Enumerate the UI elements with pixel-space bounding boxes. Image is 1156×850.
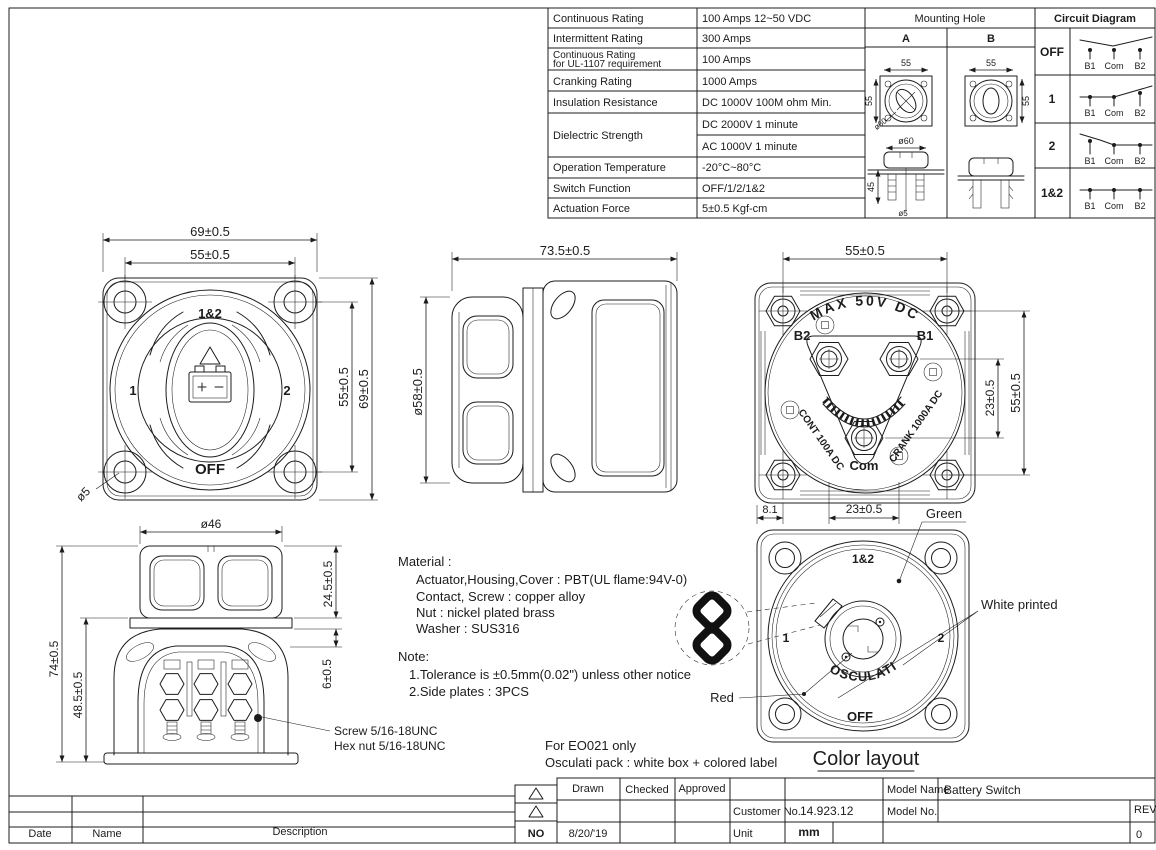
checked-header: Checked bbox=[625, 784, 668, 796]
note-title: Note: bbox=[398, 649, 429, 664]
spec-value: 1000 Amps bbox=[702, 76, 758, 88]
terminal-stack bbox=[194, 660, 218, 741]
terminal-label: B1 bbox=[1084, 108, 1095, 118]
material-line: Actuator,Housing,Cover : PBT(UL flame:94… bbox=[416, 572, 687, 587]
material-title: Material : bbox=[398, 554, 451, 569]
svg-text:MAX 50V DC: MAX 50V DC bbox=[807, 292, 923, 323]
terminal-label: Com bbox=[1104, 201, 1123, 211]
approved-header: Approved bbox=[678, 783, 725, 795]
mounting-a-side: ø60 45 ø5 bbox=[866, 136, 944, 218]
side-view: 73.5±0.5 ø58±0.5 bbox=[410, 243, 677, 492]
corner-hole bbox=[769, 542, 801, 574]
corner-hole bbox=[98, 445, 152, 499]
osculati-logo-icon bbox=[677, 593, 748, 664]
note-block: Note: 1.Tolerance is ±0.5mm(0.02") unles… bbox=[398, 649, 691, 699]
dim-a-side-screw: ø5 bbox=[898, 209, 908, 218]
stud-b2 bbox=[810, 343, 848, 376]
dim-a-side-dia: ø60 bbox=[898, 136, 914, 146]
spec-value: OFF/1/2/1&2 bbox=[702, 183, 765, 195]
battery-icon bbox=[189, 366, 231, 402]
mounting-col-a: A bbox=[902, 33, 910, 45]
unit-value: mm bbox=[798, 825, 819, 839]
rev-value: 0 bbox=[1136, 829, 1142, 841]
spec-value: 100 Amps 12~50 VDC bbox=[702, 13, 811, 25]
note-line: 1.Tolerance is ±0.5mm(0.02") unless othe… bbox=[409, 667, 691, 682]
dim-side-length: 73.5±0.5 bbox=[540, 243, 591, 258]
front-label-12: 1&2 bbox=[198, 306, 222, 321]
color-label-1: 1 bbox=[783, 631, 790, 645]
customer-no-label: Customer No. bbox=[733, 806, 801, 818]
back-label-b1: B1 bbox=[917, 328, 934, 343]
dim-a-dia: ø60 bbox=[872, 116, 889, 132]
brand-arc-label: OSCULATI bbox=[827, 658, 899, 684]
mounting-b-side bbox=[958, 158, 1024, 208]
circuit-row-1: 1 B1 Com B2 bbox=[1049, 86, 1152, 118]
dim-back-holes-v: 55±0.5 bbox=[1008, 373, 1023, 413]
date-header: Date bbox=[28, 828, 51, 840]
circuit-title: Circuit Diagram bbox=[1054, 13, 1136, 25]
no-header: NO bbox=[528, 828, 545, 840]
terminal-label: B2 bbox=[1134, 61, 1145, 71]
color-label-12: 1&2 bbox=[852, 552, 874, 566]
circuit-row-12: 1&2 B1 Com B2 bbox=[1041, 186, 1152, 211]
dim-a-top: 55 bbox=[901, 58, 911, 68]
dim-front-holes-v: 55±0.5 bbox=[336, 367, 351, 407]
customer-no-value: 14.923.12 bbox=[800, 804, 854, 818]
terminal-label: B2 bbox=[1134, 108, 1145, 118]
front-view: 1&2 1 2 OFF 69±0.5 55±0.5 55±0.5 69±0.5 … bbox=[73, 224, 378, 504]
red-callout: Red bbox=[710, 690, 734, 705]
dim-front-height: 69±0.5 bbox=[356, 369, 371, 409]
material-block: Material : Actuator,Housing,Cover : PBT(… bbox=[398, 554, 687, 636]
terminal-label: Com bbox=[1104, 156, 1123, 166]
color-label-2: 2 bbox=[938, 631, 945, 645]
dim-bottom-total: 74±0.5 bbox=[47, 640, 61, 677]
mounting-hole-title: Mounting Hole bbox=[915, 13, 986, 25]
spec-table: Continuous Rating 100 Amps 12~50 VDC Int… bbox=[548, 8, 1155, 218]
back-view: MAX 50V DC B2 B1 Com CONT 100A DC CRANK … bbox=[755, 243, 1030, 524]
spec-value: 5±0.5 Kgf-cm bbox=[702, 203, 767, 215]
packing-line: Osculati pack : white box + colored labe… bbox=[545, 755, 777, 770]
top-and-front-section-view: Screw 5/16-18UNC Hex nut 5/16-18UNC ø46 … bbox=[47, 517, 446, 764]
spec-label: Intermittent Rating bbox=[553, 33, 643, 45]
dim-front-width: 69±0.5 bbox=[190, 224, 230, 239]
material-line: Washer : SUS316 bbox=[416, 621, 520, 636]
terminal-label: B1 bbox=[1084, 201, 1095, 211]
spec-label: Switch Function bbox=[553, 183, 631, 195]
material-line: Nut : nickel plated brass bbox=[416, 605, 555, 620]
hexnut-callout: Hex nut 5/16-18UNC bbox=[334, 739, 446, 753]
circuit-state: 1&2 bbox=[1041, 186, 1063, 200]
dim-front-hole-dia: ø5 bbox=[73, 484, 93, 504]
dim-a-left: 55 bbox=[864, 96, 874, 106]
dim-back-studs: 23±0.5 bbox=[846, 502, 883, 516]
terminal-label: B1 bbox=[1084, 61, 1095, 71]
stud-com bbox=[845, 422, 883, 455]
dim-a-side-depth: 45 bbox=[866, 182, 876, 192]
terminal-stack bbox=[160, 660, 184, 741]
spec-label: Continuous Rating bbox=[553, 13, 644, 25]
unit-label: Unit bbox=[733, 828, 753, 840]
spec-value: DC 2000V 1 minute bbox=[702, 119, 798, 131]
callout-dot bbox=[254, 714, 262, 722]
drawing-sheet: Continuous Rating 100 Amps 12~50 VDC Int… bbox=[0, 0, 1156, 850]
mounting-a-face: 55 55 ø60 bbox=[864, 58, 932, 132]
front-label-2: 2 bbox=[283, 383, 290, 398]
packing-line: For EO021 only bbox=[545, 738, 637, 753]
description-header: Description bbox=[272, 826, 327, 838]
front-label-1: 1 bbox=[129, 383, 136, 398]
corner-hole bbox=[268, 445, 322, 499]
terminal-label: Com bbox=[1104, 61, 1123, 71]
corner-screw bbox=[759, 451, 807, 499]
note-line: 2.Side plates : 3PCS bbox=[409, 684, 529, 699]
dim-bottom-flange: 6±0.5 bbox=[320, 659, 334, 689]
rotary-knob bbox=[150, 312, 270, 468]
spec-label-line2: for UL-1107 requirement bbox=[553, 59, 661, 70]
model-name-value: Battery Switch bbox=[944, 783, 1021, 797]
corner-hole bbox=[98, 275, 152, 329]
spec-value: DC 1000V 100M ohm Min. bbox=[702, 97, 832, 109]
spec-value-line2: AC 1000V 1 minute bbox=[702, 141, 797, 153]
color-layout-view: OSCULATI 1&2 1 2 OFF Green White printed… bbox=[675, 506, 1058, 771]
svg-text:OSCULATI: OSCULATI bbox=[827, 658, 899, 684]
mounting-col-b: B bbox=[987, 33, 995, 45]
model-no-label: Model No. bbox=[887, 806, 937, 818]
green-callout: Green bbox=[926, 506, 962, 521]
spec-value: 100 Amps bbox=[702, 54, 751, 66]
dim-bottom-knob: ø46 bbox=[201, 517, 222, 531]
circuit-state: 1 bbox=[1049, 92, 1056, 106]
dim-side-knob: ø58±0.5 bbox=[410, 368, 425, 416]
material-line: Contact, Screw : copper alloy bbox=[416, 589, 586, 604]
dim-b-right: 55 bbox=[1021, 96, 1031, 106]
corner-hole bbox=[769, 698, 801, 730]
dim-bottom-body: 48.5±0.5 bbox=[71, 671, 85, 718]
corner-hole bbox=[925, 542, 957, 574]
circuit-diagram-table: Circuit Diagram OFF B1 Com B2 1 B1 Com B… bbox=[1035, 13, 1155, 218]
mounting-b-face: 55 55 bbox=[965, 58, 1031, 126]
dim-back-edge: 8.1 bbox=[762, 504, 777, 516]
back-label-com: Com bbox=[850, 458, 879, 473]
drawn-header: Drawn bbox=[572, 783, 604, 795]
logo-detail bbox=[675, 591, 820, 665]
dim-back-stud-v: 23±0.5 bbox=[983, 379, 997, 416]
front-label-off: OFF bbox=[195, 461, 225, 478]
screw-callout: Screw 5/16-18UNC bbox=[334, 724, 438, 738]
dim-front-holes: 55±0.5 bbox=[190, 247, 230, 262]
rev-label: REV bbox=[1134, 804, 1156, 816]
back-label-crank: CRANK 1000A DC bbox=[887, 389, 945, 465]
drawn-date: 8/20/'19 bbox=[569, 828, 608, 840]
title-block: Date Name Description NO Drawn Checked A… bbox=[9, 778, 1156, 843]
name-header: Name bbox=[92, 828, 121, 840]
spec-label: Dielectric Strength bbox=[553, 130, 643, 142]
back-label-b2: B2 bbox=[794, 328, 811, 343]
model-name-label: Model Name bbox=[887, 784, 949, 796]
terminal-stack bbox=[228, 660, 252, 741]
terminal-label: Com bbox=[1104, 108, 1123, 118]
marker-hole bbox=[924, 363, 942, 381]
circuit-state: 2 bbox=[1049, 139, 1056, 153]
color-label-off: OFF bbox=[847, 709, 873, 724]
stud-b1 bbox=[880, 343, 918, 376]
spec-label: Actuation Force bbox=[553, 203, 630, 215]
dim-b-top: 55 bbox=[986, 58, 996, 68]
white-printed-callout: White printed bbox=[981, 597, 1058, 612]
circuit-row-off: OFF B1 Com B2 bbox=[1040, 37, 1152, 71]
max-voltage-arc-label: MAX 50V DC bbox=[807, 292, 923, 323]
color-layout-caption: Color layout bbox=[813, 748, 920, 770]
spec-label: Cranking Rating bbox=[553, 76, 632, 88]
mounting-hole-table: Mounting Hole A B 55 55 ø60 55 bbox=[864, 8, 1035, 218]
spec-value: 300 Amps bbox=[702, 33, 751, 45]
terminal-label: B2 bbox=[1134, 156, 1145, 166]
pointer-triangle-icon bbox=[200, 347, 220, 364]
spec-label: Operation Temperature bbox=[553, 162, 666, 174]
terminal-label: B2 bbox=[1134, 201, 1145, 211]
corner-hole bbox=[925, 698, 957, 730]
spec-value: -20°C~80°C bbox=[702, 162, 761, 174]
spec-label: Insulation Resistance bbox=[553, 97, 658, 109]
corner-hole bbox=[268, 275, 322, 329]
drawing-canvas: Continuous Rating 100 Amps 12~50 VDC Int… bbox=[0, 0, 1156, 850]
marker-hole bbox=[781, 401, 799, 419]
dim-bottom-knob-h: 24.5±0.5 bbox=[321, 560, 335, 607]
dim-back-holes: 55±0.5 bbox=[845, 243, 885, 258]
terminal-label: B1 bbox=[1084, 156, 1095, 166]
packing-block: For EO021 only Osculati pack : white box… bbox=[545, 738, 777, 770]
circuit-row-2: 2 B1 Com B2 bbox=[1049, 134, 1152, 166]
circuit-state: OFF bbox=[1040, 45, 1064, 59]
